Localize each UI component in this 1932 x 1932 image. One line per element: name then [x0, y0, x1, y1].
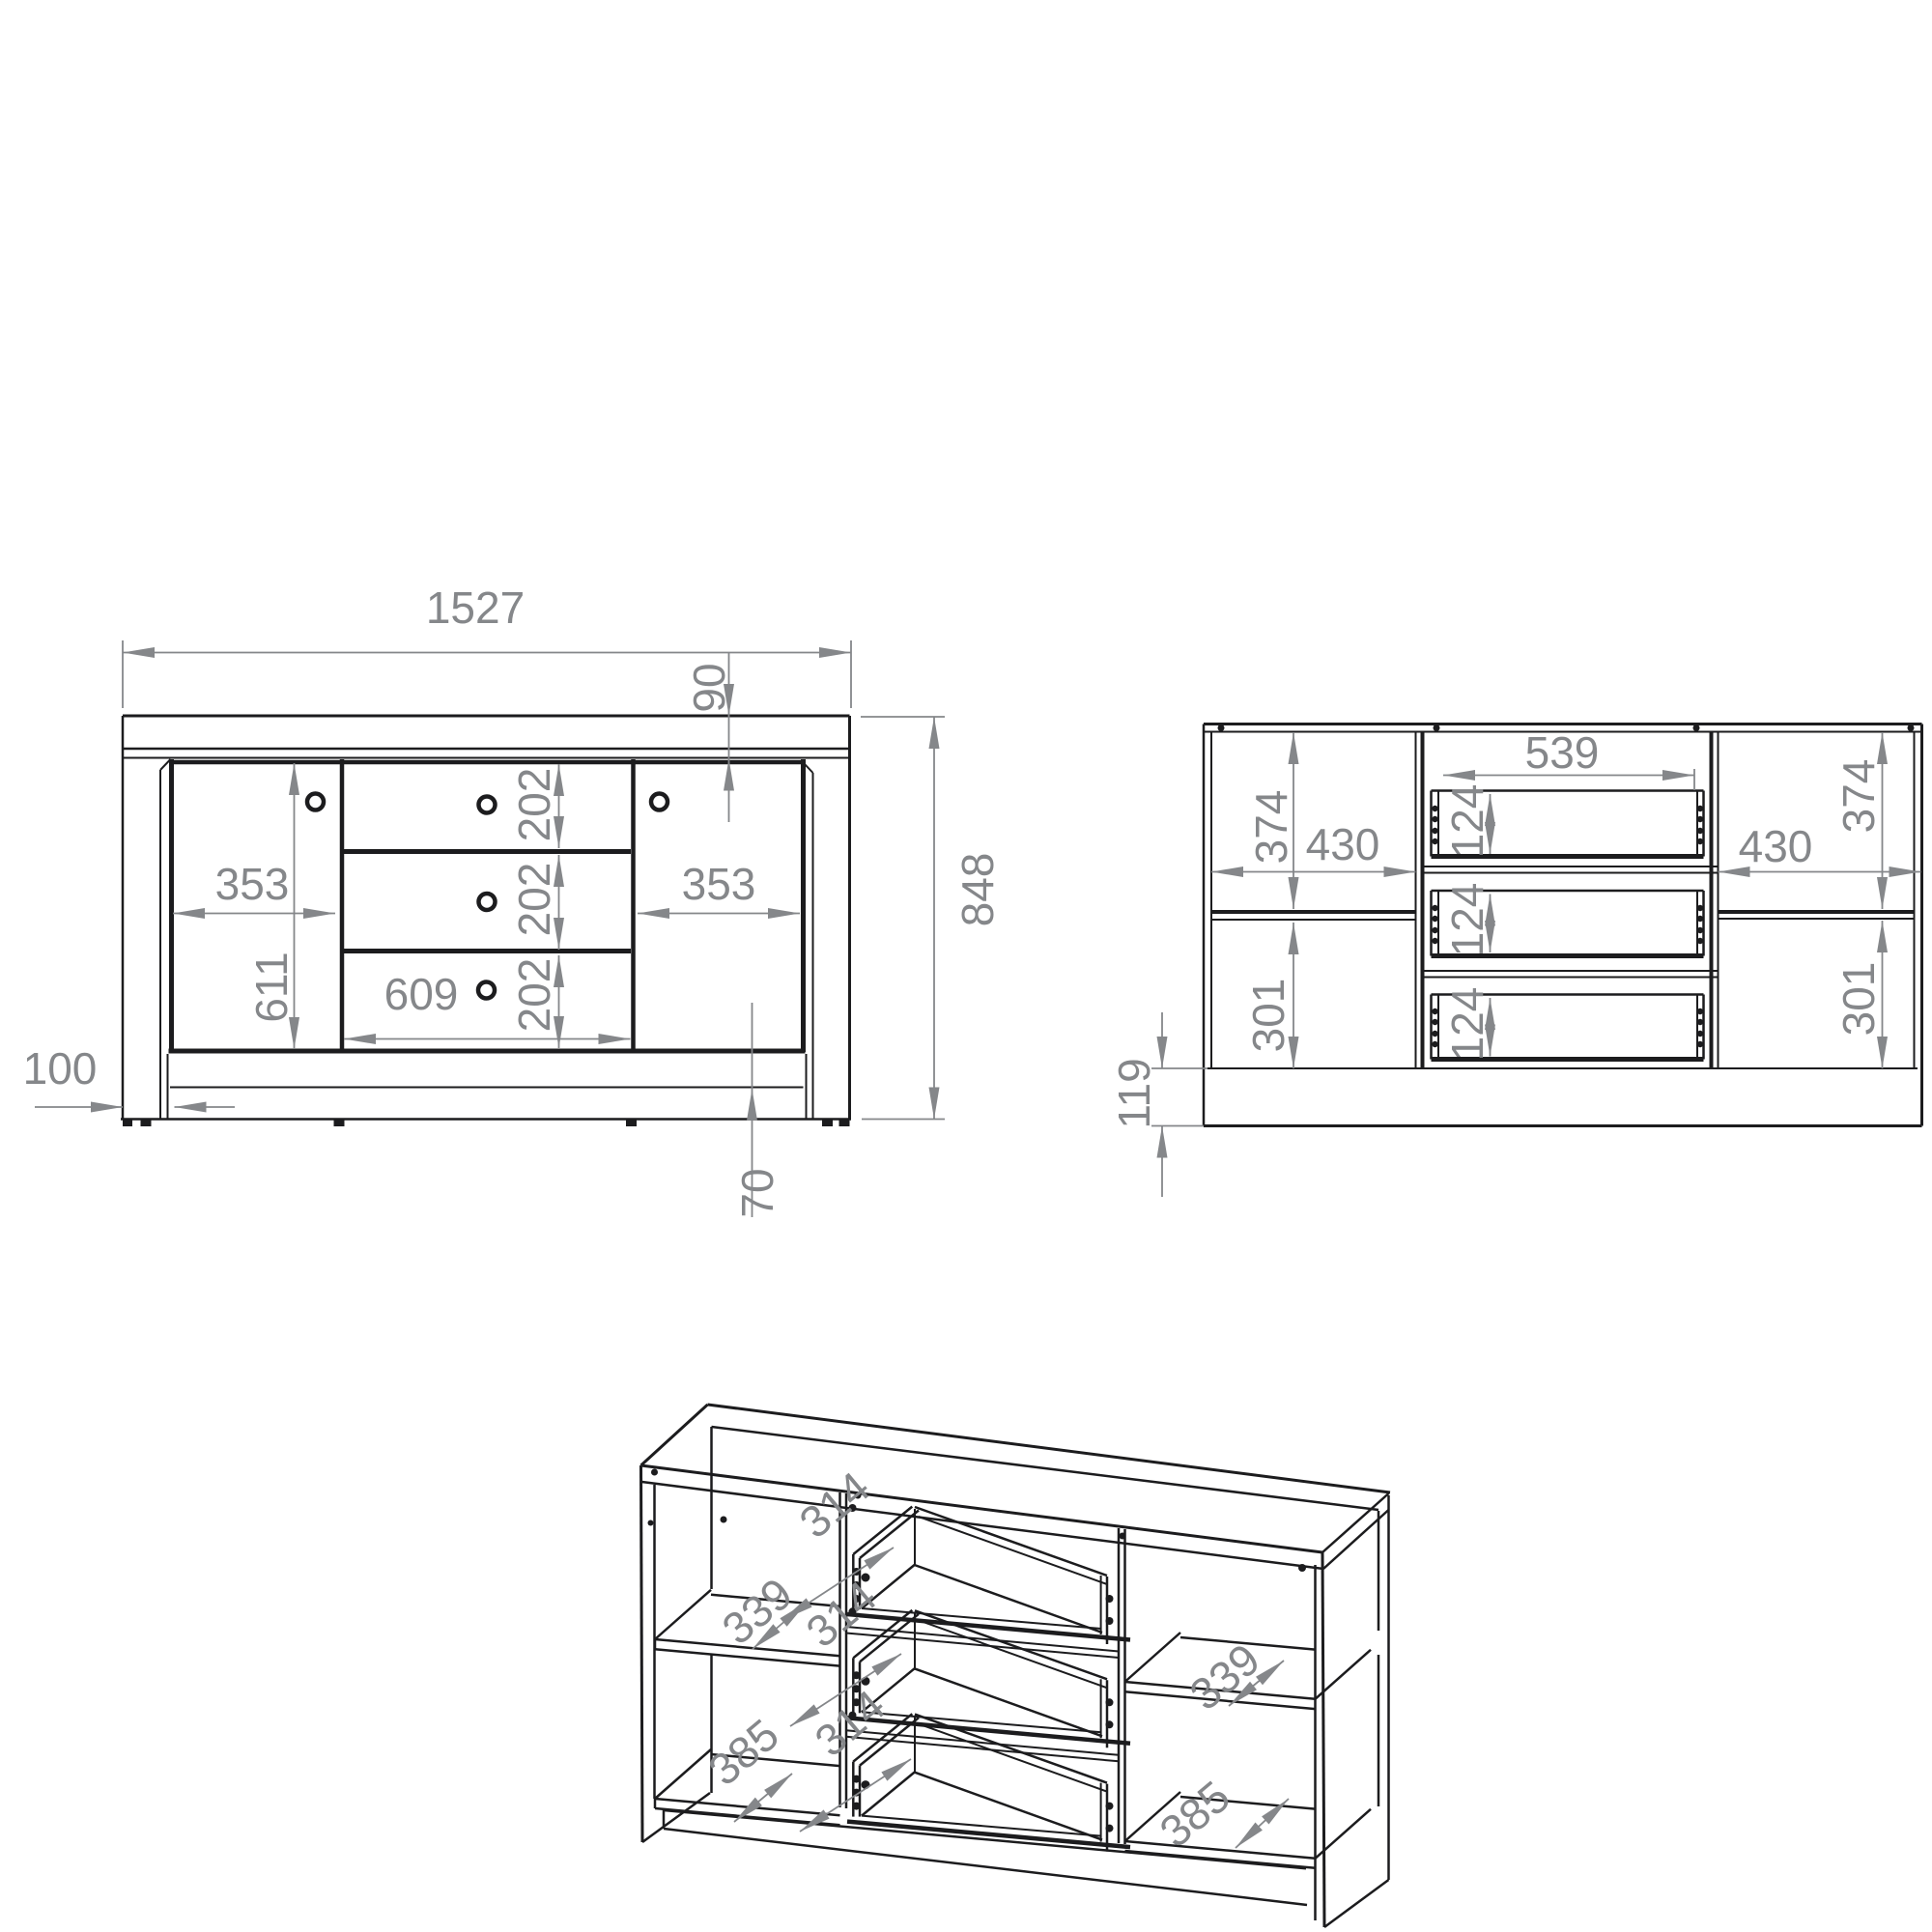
svg-text:124: 124	[1442, 883, 1492, 957]
svg-text:611: 611	[246, 952, 297, 1022]
svg-text:119: 119	[1109, 1058, 1159, 1128]
svg-text:301: 301	[1833, 962, 1884, 1037]
svg-text:90: 90	[684, 663, 734, 712]
svg-text:202: 202	[509, 768, 559, 842]
svg-text:70: 70	[732, 1168, 782, 1217]
svg-text:202: 202	[509, 863, 559, 937]
svg-text:430: 430	[1739, 821, 1813, 871]
svg-text:353: 353	[682, 859, 756, 909]
svg-text:100: 100	[23, 1043, 98, 1094]
svg-text:539: 539	[1525, 727, 1600, 778]
svg-text:374: 374	[1246, 790, 1296, 865]
svg-text:609: 609	[384, 969, 459, 1019]
svg-text:374: 374	[1833, 759, 1884, 834]
svg-text:124: 124	[1442, 784, 1492, 859]
svg-text:301: 301	[1243, 979, 1293, 1053]
svg-text:124: 124	[1442, 987, 1492, 1062]
svg-text:848: 848	[952, 853, 1003, 927]
svg-text:1527: 1527	[426, 582, 525, 633]
svg-text:202: 202	[509, 958, 559, 1033]
svg-text:430: 430	[1306, 819, 1380, 869]
svg-text:353: 353	[215, 859, 290, 909]
